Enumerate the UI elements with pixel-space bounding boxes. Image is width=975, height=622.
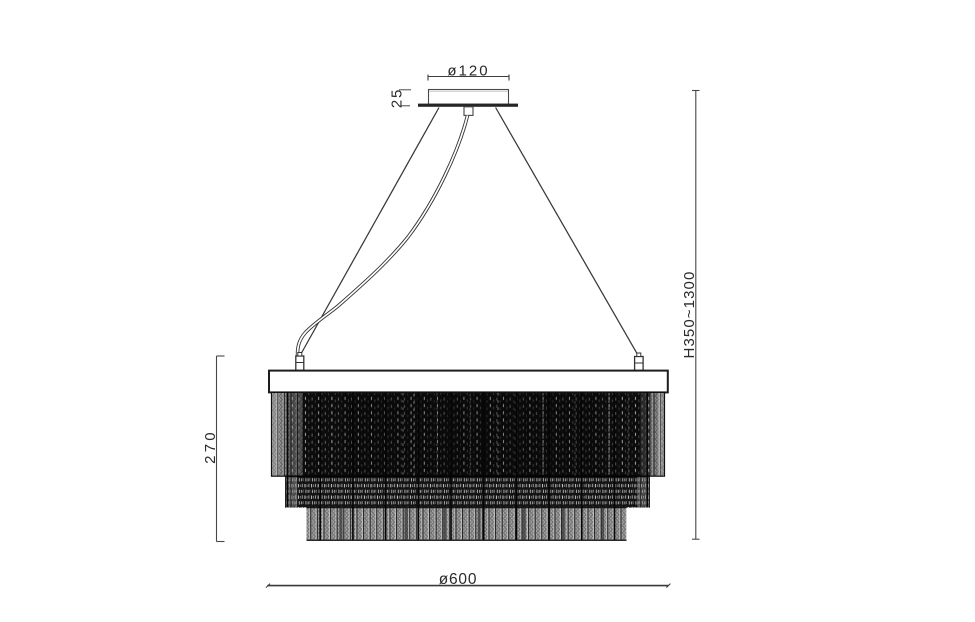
svg-text:25: 25 [389,88,406,108]
svg-text:270: 270 [202,429,219,464]
svg-text:ø600: ø600 [439,571,478,588]
svg-text:ø120: ø120 [447,62,489,79]
svg-text:H350~1300: H350~1300 [681,271,698,359]
